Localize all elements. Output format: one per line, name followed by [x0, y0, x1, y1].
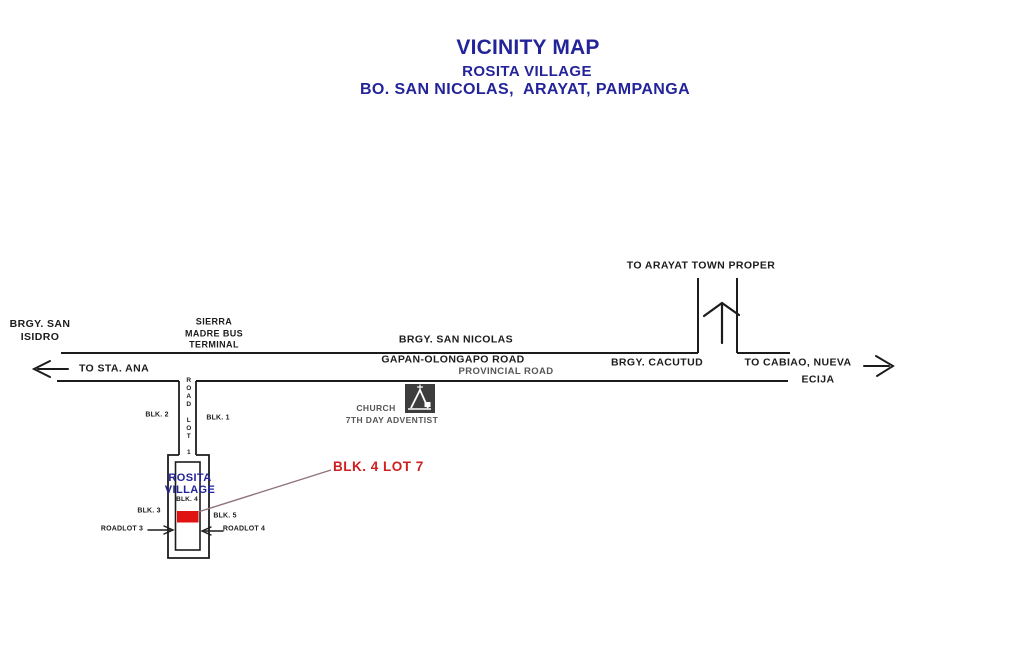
lot-leader-line [198, 470, 331, 512]
page-title: VICINITY MAP [456, 35, 599, 61]
label-to-sta-ana: TO STA. ANA [79, 363, 149, 376]
label-blk-5: BLK. 5 [213, 513, 236, 522]
label-brgy-san-isidro: BRGY. SAN ISIDRO [10, 318, 71, 344]
roadlot3-arrow-icon [148, 526, 173, 534]
label-to-arayat: TO ARAYAT TOWN PROPER [627, 260, 775, 273]
label-to-cabiao: TO CABIAO, NUEVA [745, 357, 852, 370]
village-outer-boundary [168, 455, 209, 558]
left-arrow-icon [34, 361, 68, 377]
label-church-denomination: 7TH DAY ADVENTIST [346, 415, 438, 425]
label-church: CHURCH [356, 403, 395, 413]
label-to-cabiao-ecija: ECIJA [802, 374, 835, 387]
up-arrow-icon [704, 303, 739, 343]
label-roadlot-4: ROADLOT 4 [223, 526, 265, 535]
label-gapan-olongapo-road: GAPAN-OLONGAPO ROAD [381, 354, 524, 367]
label-blk-4: BLK. 4 [176, 496, 198, 504]
label-rosita-village: ROSITA VILLAGE [165, 472, 215, 496]
lot-highlight-rect [177, 511, 199, 523]
page-subtitle-location: BO. SAN NICOLAS, ARAYAT, PAMPANGA [360, 80, 690, 100]
label-blk4-lot7-highlight: BLK. 4 LOT 7 [333, 459, 424, 475]
label-roadlot-3: ROADLOT 3 [101, 526, 143, 535]
label-brgy-san-nicolas: BRGY. SAN NICOLAS [399, 334, 513, 347]
label-road-lot-1: ROAD LOT 1 [185, 377, 192, 457]
vicinity-map: VICINITY MAP ROSITA VILLAGE BO. SAN NICO… [0, 0, 1024, 651]
label-brgy-cacutud: BRGY. CACUTUD [611, 357, 703, 370]
label-blk-3: BLK. 3 [137, 508, 160, 517]
roadlot4-arrow-icon [202, 527, 223, 535]
page-subtitle-village: ROSITA VILLAGE [462, 63, 592, 81]
label-provincial-road: PROVINCIAL ROAD [458, 366, 553, 378]
church-icon [405, 384, 435, 413]
label-blk-2: BLK. 2 [145, 412, 168, 421]
label-blk-1: BLK. 1 [206, 415, 229, 424]
right-arrow-icon [864, 356, 893, 376]
label-sierra-madre-terminal: SIERRA MADRE BUS TERMINAL [185, 317, 243, 352]
